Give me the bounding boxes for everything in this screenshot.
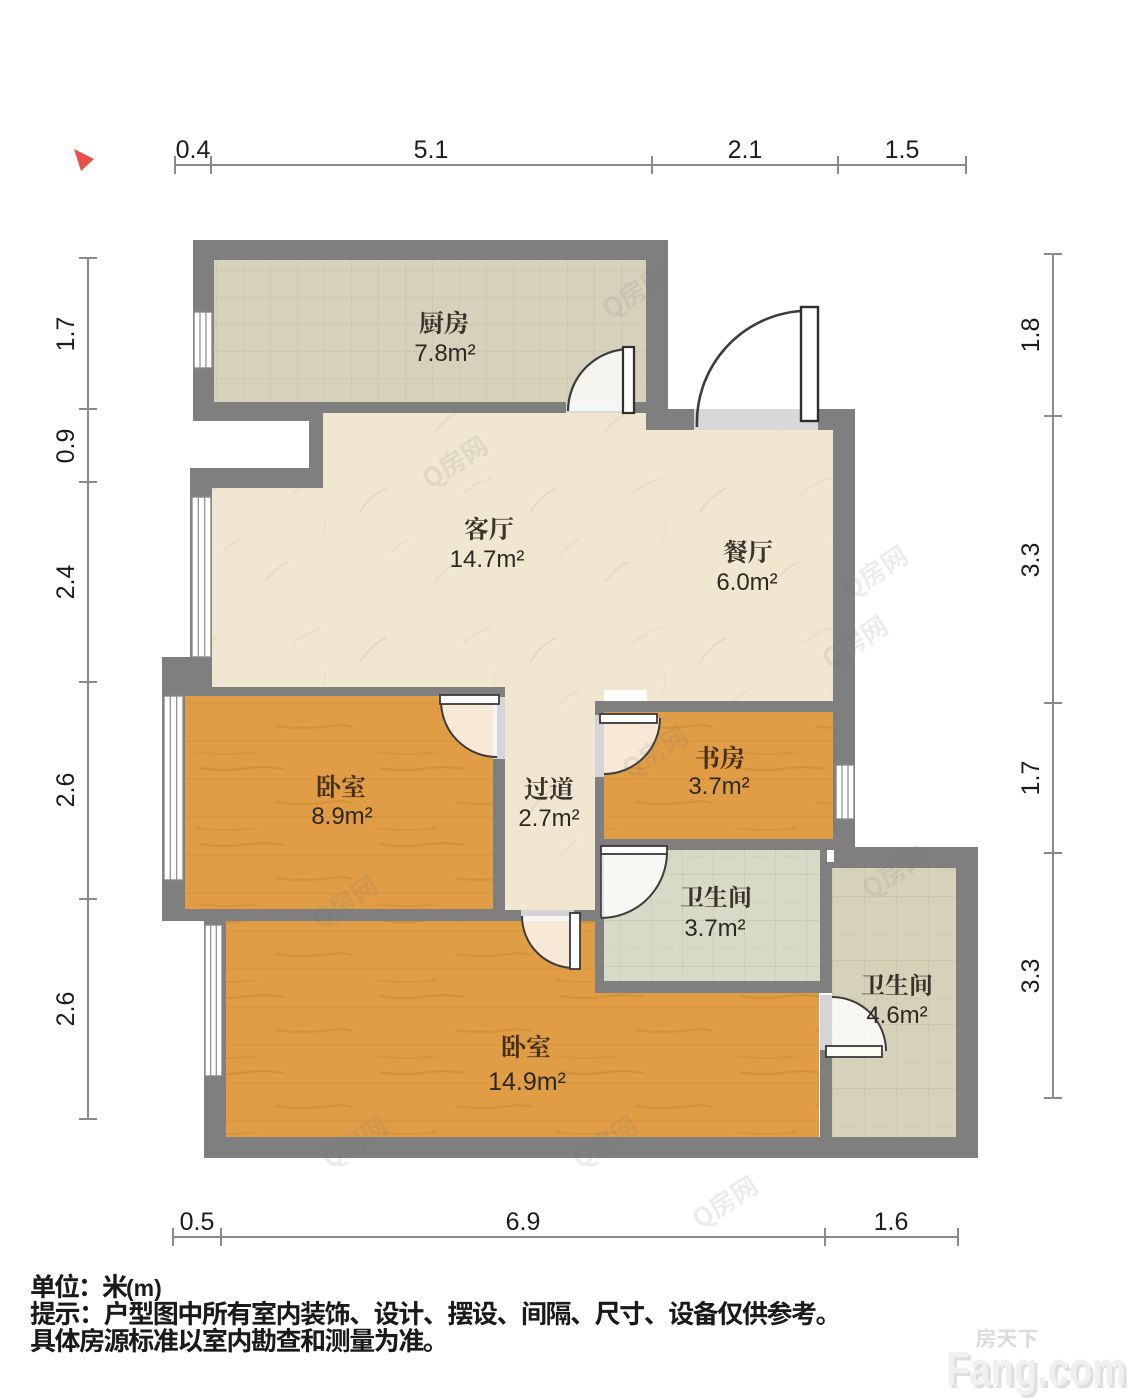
svg-text:3.3: 3.3 (1017, 959, 1045, 994)
svg-text:1.7: 1.7 (1017, 761, 1045, 796)
svg-text:1.5: 1.5 (885, 136, 920, 164)
svg-text:4.6m²: 4.6m² (866, 1002, 927, 1029)
svg-text:(m): (m) (126, 1275, 162, 1301)
svg-text:2.4: 2.4 (52, 565, 80, 600)
svg-text:0.4: 0.4 (176, 136, 211, 164)
svg-text:0.9: 0.9 (52, 429, 80, 464)
svg-text:1.6: 1.6 (874, 1208, 909, 1236)
svg-text:2.7m²: 2.7m² (518, 805, 579, 832)
svg-text:1.8: 1.8 (1017, 318, 1045, 353)
svg-text:3.7m²: 3.7m² (684, 915, 745, 942)
svg-text:0.5: 0.5 (180, 1208, 215, 1236)
svg-text:2.6: 2.6 (52, 773, 80, 808)
svg-text:2.1: 2.1 (728, 136, 763, 164)
svg-text:14.9m²: 14.9m² (488, 1068, 566, 1096)
svg-text:3.7m²: 3.7m² (688, 773, 749, 800)
svg-text:7.8m²: 7.8m² (414, 340, 475, 367)
svg-text:6.0m²: 6.0m² (716, 569, 777, 596)
svg-text:14.7m²: 14.7m² (450, 546, 525, 573)
svg-text:2.6: 2.6 (52, 992, 80, 1027)
svg-text:Fang.com: Fang.com (946, 1342, 1126, 1395)
svg-text:3.3: 3.3 (1017, 543, 1045, 578)
svg-text:5.1: 5.1 (414, 136, 449, 164)
svg-text:6.9: 6.9 (506, 1208, 541, 1236)
svg-text:8.9m²: 8.9m² (311, 803, 372, 830)
svg-text:1.7: 1.7 (52, 317, 80, 352)
